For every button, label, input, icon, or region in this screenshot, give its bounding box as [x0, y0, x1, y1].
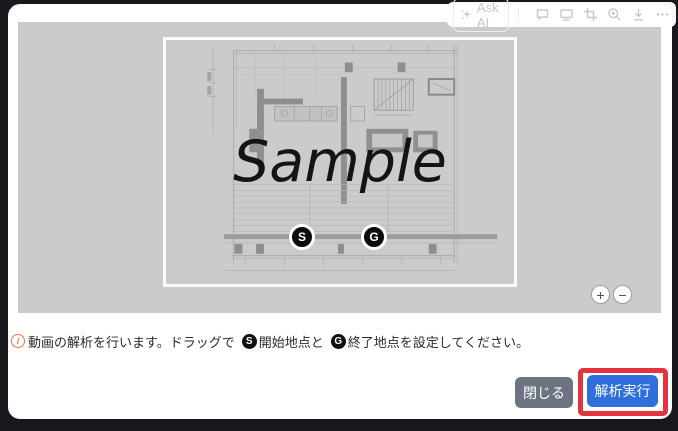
- video-frame-border: [163, 37, 517, 287]
- run-analysis-button[interactable]: 解析実行: [587, 375, 658, 407]
- goal-point-marker[interactable]: G: [361, 224, 387, 250]
- instruction-text: i 動画の解析を行います。ドラッグで S 開始地点と G 終了地点を設定してくだ…: [11, 331, 529, 351]
- sparkle-icon: [459, 8, 473, 22]
- floorplan-image: [166, 40, 514, 284]
- ask-ai-label: Ask AI: [477, 0, 501, 30]
- zoom-in-icon[interactable]: [607, 7, 622, 22]
- instruction-part2: 開始地点と: [259, 332, 324, 351]
- goal-badge-icon: G: [331, 334, 346, 349]
- analysis-dialog: Sample S G + − i 動画の解析を行います。ドラッグで S 開始地点…: [8, 4, 672, 419]
- crop-icon[interactable]: [583, 7, 598, 22]
- start-badge-icon: S: [242, 334, 257, 349]
- instruction-part3: 終了地点を設定してください。: [348, 332, 529, 351]
- video-preview-canvas[interactable]: Sample S G + −: [18, 22, 661, 313]
- start-point-marker[interactable]: S: [289, 224, 315, 250]
- zoom-out-button[interactable]: −: [613, 285, 632, 304]
- close-button[interactable]: 閉じる: [515, 377, 573, 408]
- ask-ai-button[interactable]: Ask AI: [453, 0, 509, 32]
- zoom-in-button[interactable]: +: [591, 285, 610, 304]
- comment-icon[interactable]: [535, 7, 550, 22]
- display-icon[interactable]: [559, 7, 574, 22]
- info-icon: i: [11, 334, 25, 348]
- more-icon[interactable]: [655, 7, 670, 22]
- download-icon[interactable]: [631, 7, 646, 22]
- viewer-toolbar: Ask AI: [447, 2, 676, 27]
- instruction-part1: 動画の解析を行います。ドラッグで: [28, 332, 235, 351]
- toolbar-divider: [518, 8, 519, 22]
